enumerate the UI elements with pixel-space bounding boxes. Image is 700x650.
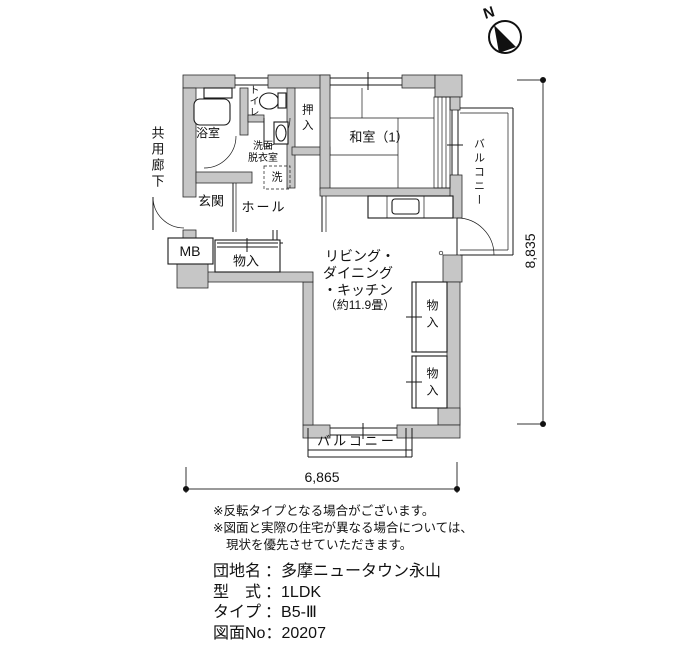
label-balcony-bottom: バルコニー [317, 435, 397, 448]
label-washroom-line2: 脱衣室 [248, 154, 278, 164]
info-label: 団地名 [213, 562, 265, 583]
info-row-katashiki: 型 式：1LDK [213, 583, 441, 604]
label-hall-closet: 物入 [233, 255, 259, 268]
window-top-right-icon [330, 72, 402, 90]
label-washroom-line1: 洗面 [253, 142, 273, 152]
info-value: B5-Ⅲ [281, 604, 317, 621]
info-separator: ： [265, 563, 281, 580]
label-ldk-line2: ダイニング [323, 266, 393, 280]
note-line-3: 現状を優先させていただきます。 [213, 537, 473, 554]
engawa-stripes [434, 97, 450, 188]
label-bath: 浴室 [196, 127, 220, 139]
label-japanese-room: 和室（1） [349, 131, 408, 144]
label-balcony-right: バルコニー [473, 138, 484, 208]
entrance-door-icon [153, 197, 184, 230]
info-separator: ： [265, 584, 281, 601]
info-label: 図面No [213, 624, 265, 645]
info-value: 多摩ニュータウン永山 [281, 563, 441, 580]
info-separator: ： [265, 604, 281, 621]
dimension-width-value: 6,865 [304, 470, 339, 484]
label-corridor: 共用廊下 [151, 126, 164, 190]
note-line-1: ※反転タイプとなる場合がございます。 [213, 503, 473, 520]
label-ldk-line3: ・キッチン [323, 283, 393, 297]
washbasin-icon [274, 122, 288, 144]
label-hall: ホール [241, 201, 286, 214]
label-toilet: トイレ [247, 85, 257, 118]
info-row-danchi: 団地名：多摩ニュータウン永山 [213, 562, 441, 583]
info-row-zumen-no: 図面No：20207 [213, 624, 441, 645]
label-oshiire: 押入 [300, 104, 312, 135]
bath-door-icon [204, 136, 236, 168]
balcony-door-icon [439, 218, 494, 255]
info-row-type: タイプ：B5-Ⅲ [213, 603, 441, 624]
floor-plan-page: N 共用廊下 浴室 トイレ 洗面 脱衣室 押入 和室（1） 玄関 ホール MB … [0, 0, 700, 650]
info-label: タイプ [213, 603, 265, 624]
kitchen-counter-icon [368, 196, 453, 218]
label-washing-machine: 洗 [272, 173, 283, 184]
bathtub-icon [194, 88, 232, 125]
label-ldk-line1: リビング・ [325, 249, 395, 263]
label-closet-lower: 物入 [426, 367, 438, 401]
label-closet-upper: 物入 [426, 299, 438, 333]
notes-block: ※反転タイプとなる場合がございます。 ※図面と実際の住宅が異なる場合については、… [213, 503, 473, 554]
note-line-2: ※図面と実際の住宅が異なる場合については、 [213, 520, 473, 537]
north-arrow-icon [489, 21, 521, 53]
info-label: 型 式 [213, 583, 265, 604]
label-entrance: 玄関 [198, 195, 224, 208]
info-value: 20207 [281, 625, 326, 642]
window-right-icon [447, 110, 463, 175]
kitchen-sink-icon [392, 199, 419, 214]
info-separator: ： [265, 625, 281, 642]
toilet-icon [260, 93, 287, 109]
dimension-height-value: 8,835 [523, 233, 537, 268]
label-ldk-line4: （約11.9畳） [325, 299, 395, 311]
property-info-block: 団地名：多摩ニュータウン永山 型 式：1LDK タイプ：B5-Ⅲ 図面No：20… [213, 562, 441, 644]
info-value: 1LDK [281, 584, 321, 601]
label-meter-box: MB [180, 244, 201, 258]
